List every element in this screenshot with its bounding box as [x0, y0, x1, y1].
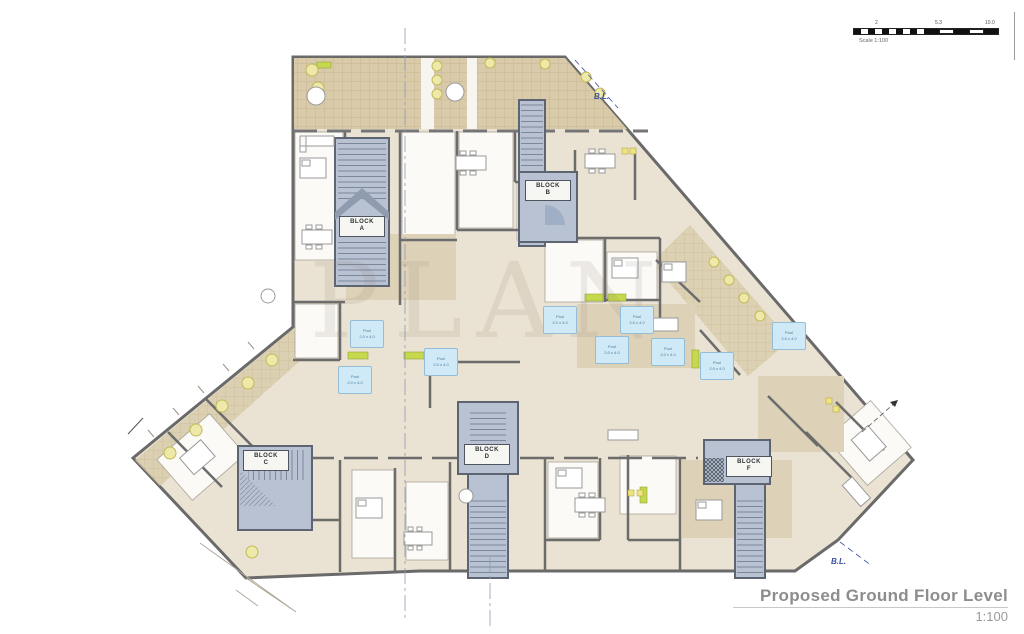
bed: [556, 468, 582, 488]
block-c-plate: BLOCK C: [243, 450, 289, 471]
block-a-label: BLOCK: [350, 219, 374, 225]
block-d-letter: D: [465, 453, 509, 461]
block-a-plate: BLOCK A: [339, 216, 385, 237]
pool-label: Pool 2.0 x 4.0: [350, 320, 384, 348]
coffee-table: [459, 489, 473, 503]
bed: [300, 158, 326, 178]
terrace-divider: [467, 58, 477, 129]
scale-bar-segments: [853, 28, 999, 35]
pool-line2: 2.0 x 4.0: [652, 352, 684, 358]
boundary-label: B.L.: [831, 557, 846, 566]
floor-plan-graphic: [0, 0, 1024, 634]
block-c-label: BLOCK: [254, 453, 278, 459]
pool-line2: 2.0 x 4.0: [701, 366, 733, 372]
pool-line2: 2.0 x 4.0: [621, 320, 653, 326]
pool-line2: 2.0 x 4.0: [773, 336, 805, 342]
drawing-scale: 1:100: [733, 609, 1008, 624]
scale-bar-ticks: 2 5.3 10.0: [853, 20, 999, 28]
pool-label: Pool 2.0 x 4.0: [651, 338, 685, 366]
block-f-letter: F: [727, 465, 771, 473]
pool-label: Pool 2.0 x 4.0: [424, 348, 458, 376]
block-d-plate: BLOCK D: [464, 444, 510, 465]
sofa: [608, 430, 638, 440]
bed: [662, 262, 686, 282]
pool-line2: 2.0 x 4.0: [544, 320, 576, 326]
pool-label: Pool 2.0 x 4.0: [595, 336, 629, 364]
drawing-title: Proposed Ground Floor Level: [733, 586, 1008, 608]
pool-label: Pool 2.0 x 4.0: [772, 322, 806, 350]
pool-line2: 2.0 x 4.0: [351, 334, 383, 340]
coffee-table: [261, 289, 275, 303]
scale-tick: 2: [875, 20, 878, 26]
block-b-letter: B: [526, 189, 570, 197]
dining-table: [652, 318, 678, 331]
bed: [612, 258, 638, 278]
bed: [696, 500, 722, 520]
pool-line2: 2.0 x 4.0: [425, 362, 457, 368]
title-block: Proposed Ground Floor Level 1:100: [733, 586, 1008, 624]
pool-label: Pool 2.0 x 4.0: [338, 366, 372, 394]
pool-line2: 2.0 x 4.0: [596, 350, 628, 356]
block-d-label: BLOCK: [475, 447, 499, 453]
drawing-sheet: PLAN BLOCK A BLOCK B BLOCK C BLOCK D BLO…: [0, 0, 1024, 634]
scale-bar-caption: Scale 1:100: [859, 38, 999, 44]
block-f-plate: BLOCK F: [726, 456, 772, 477]
block-b-label: BLOCK: [536, 183, 560, 189]
scale-tick: 10.0: [985, 20, 995, 26]
pool-line2: 2.0 x 4.0: [339, 380, 371, 386]
boundary-label: B.L.: [594, 92, 609, 101]
block-c-letter: C: [244, 459, 288, 467]
pool-label: Pool 2.0 x 4.0: [700, 352, 734, 380]
block-f-label: BLOCK: [737, 459, 761, 465]
pool-label: Pool 2.0 x 4.0: [543, 306, 577, 334]
scale-bar: 2 5.3 10.0 Scale 1:100: [853, 20, 999, 44]
bed: [356, 498, 382, 518]
pool-label: Pool 2.0 x 4.0: [620, 306, 654, 334]
datum-arrow-icon: [890, 400, 898, 407]
sheet-edge-line: [1014, 12, 1015, 60]
block-a-letter: A: [340, 225, 384, 233]
scale-tick: 5.3: [935, 20, 942, 26]
block-b-plate: BLOCK B: [525, 180, 571, 201]
